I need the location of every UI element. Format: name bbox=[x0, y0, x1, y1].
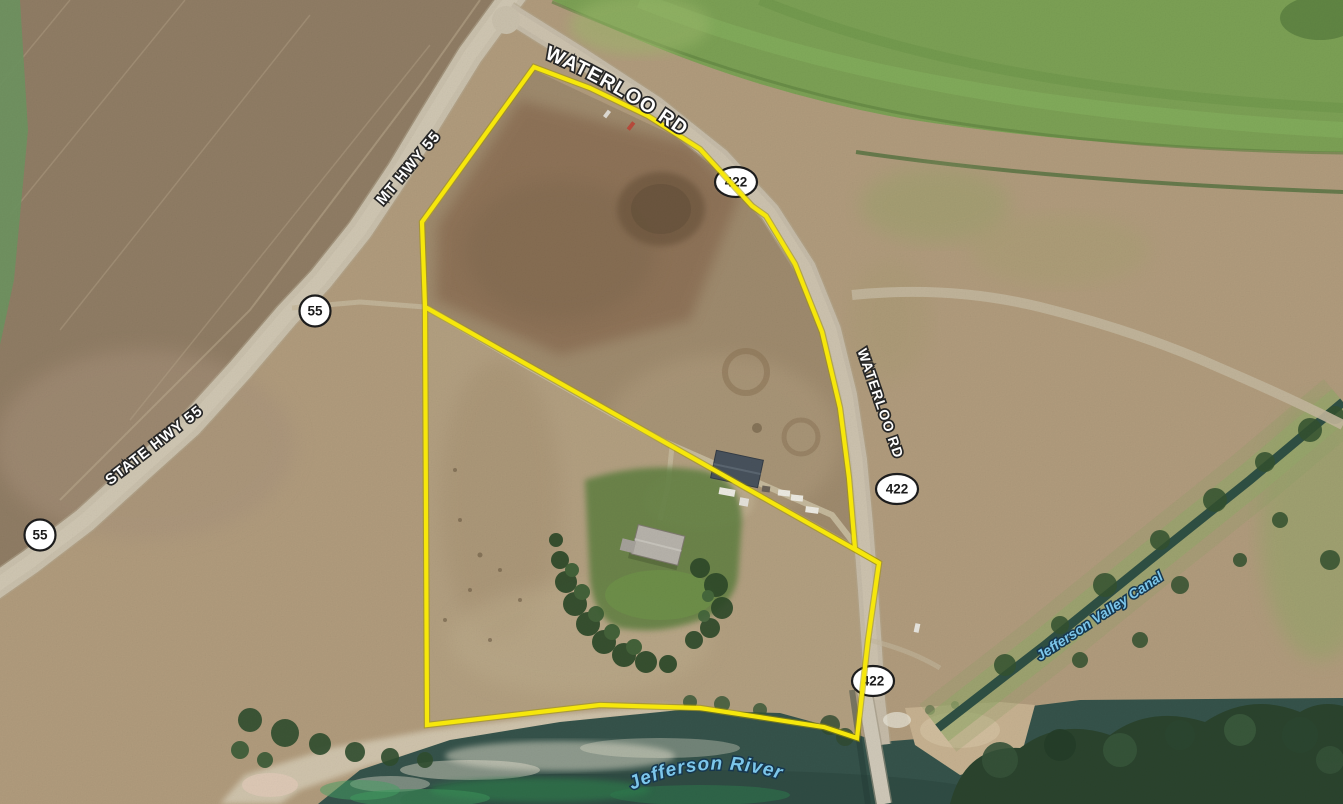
shield-number: 422 bbox=[886, 482, 909, 497]
route-shield-55: 55 bbox=[25, 520, 56, 551]
route-shield-422: 422 bbox=[876, 474, 918, 504]
satellite-map[interactable]: 422 422 422 55 55 WATERLOO RD MT HWY 55 bbox=[0, 0, 1343, 804]
route-shield-422: 422 bbox=[852, 666, 894, 696]
shield-number: 55 bbox=[307, 304, 323, 319]
route-shield-55: 55 bbox=[300, 296, 331, 327]
map-canvas: 422 422 422 55 55 WATERLOO RD MT HWY 55 bbox=[0, 0, 1343, 804]
shield-number: 55 bbox=[32, 528, 48, 543]
